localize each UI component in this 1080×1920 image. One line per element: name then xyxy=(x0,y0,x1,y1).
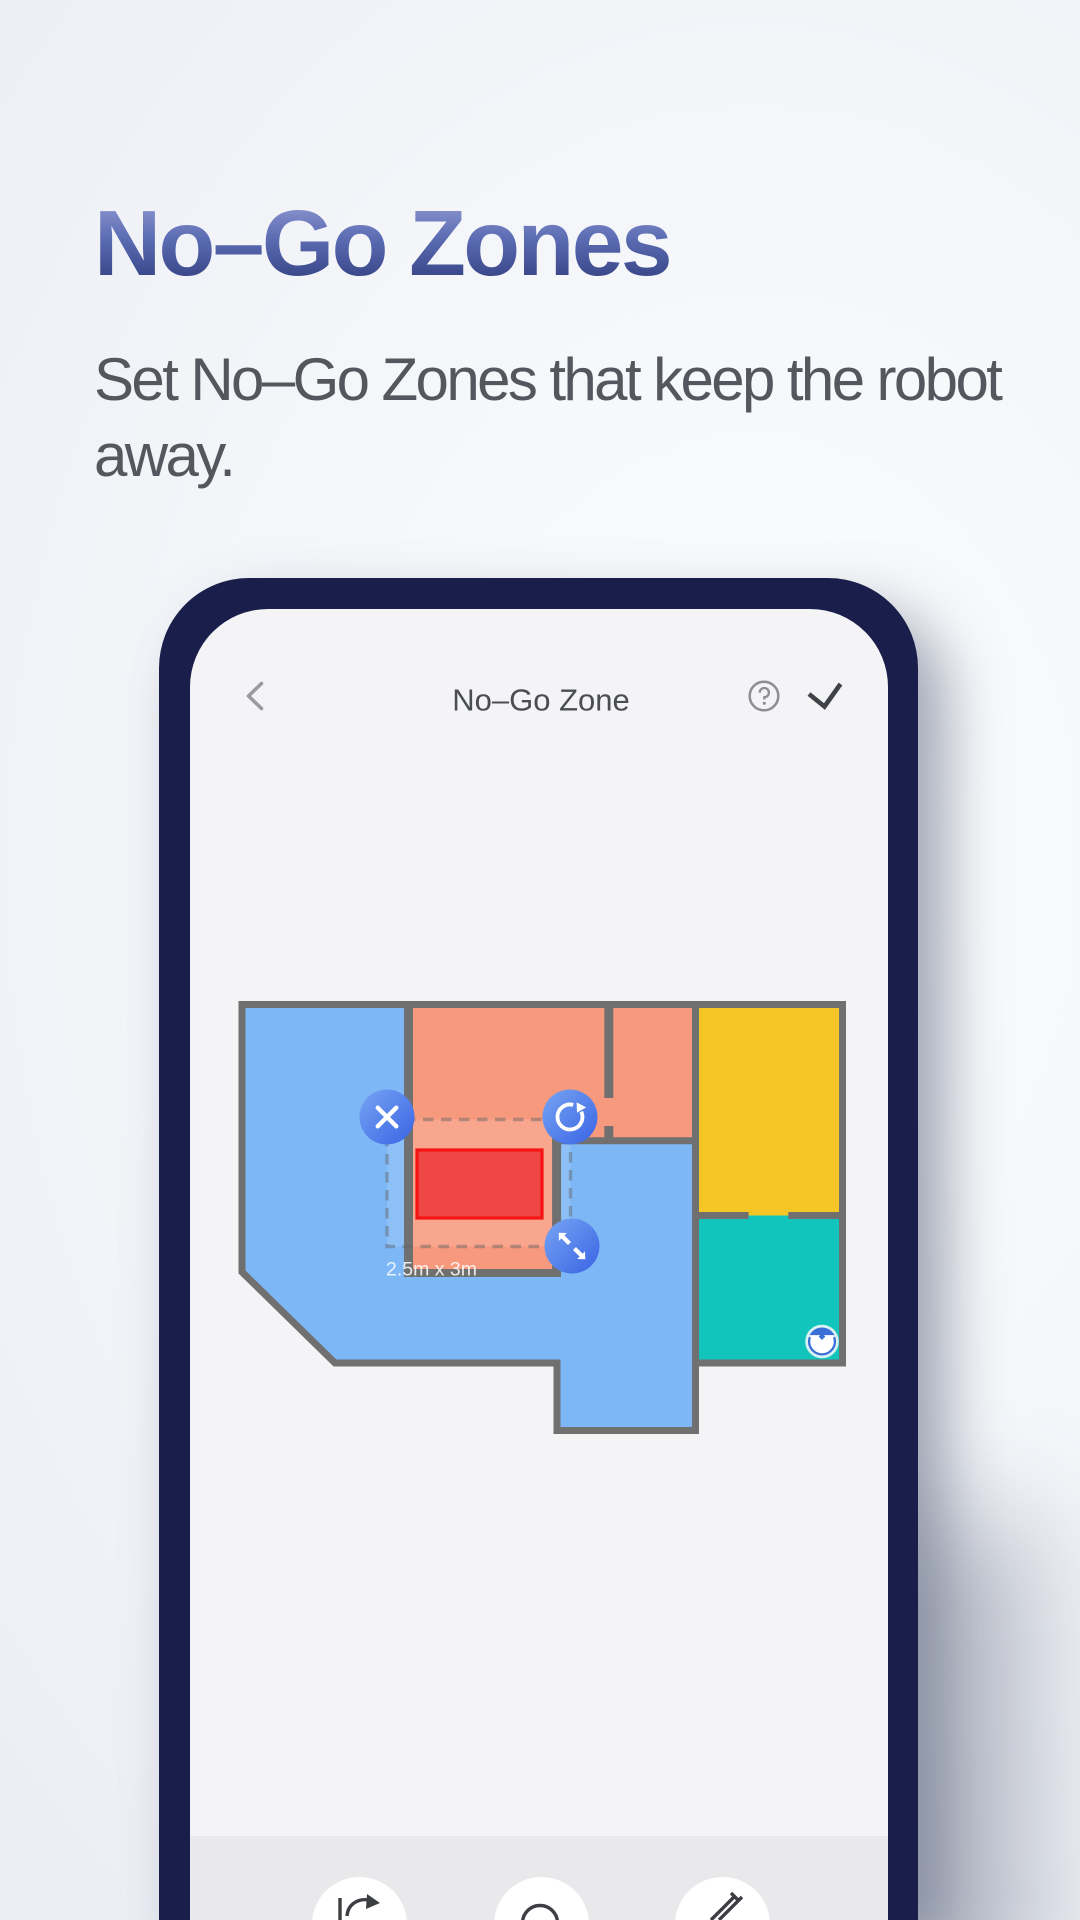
svg-text:No–Go Zone: No–Go Zone xyxy=(452,683,630,718)
svg-text:2.5m x 3m: 2.5m x 3m xyxy=(386,1259,477,1281)
